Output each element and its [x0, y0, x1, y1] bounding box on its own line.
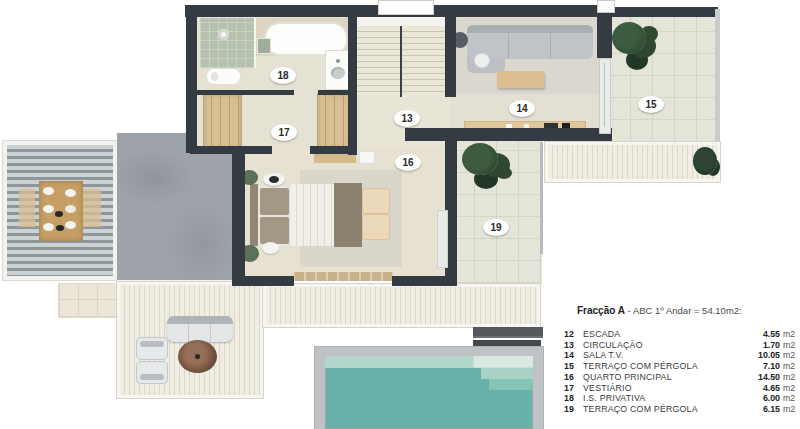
wall-top-terrace15 [605, 7, 718, 17]
toilet [206, 68, 241, 85]
legend-nm: TERRAÇO COM PÉRGOLA [583, 361, 763, 372]
legend-val: 7.10 [763, 361, 780, 372]
bath-towel [257, 38, 271, 54]
bed-pillow [258, 186, 291, 217]
outdoor-armchair [136, 361, 168, 384]
legend-val: 4.55 [763, 329, 780, 340]
legend-num: 12 [564, 329, 577, 340]
door-threshold-wood [293, 272, 393, 281]
legend-nm: QUARTO PRINCIPAL [583, 372, 758, 383]
legend-unit: m2 [783, 361, 798, 372]
legend-row-18: 18I.S. PRIVATIVA6.00m2 [560, 393, 798, 404]
wall-stairs-east [445, 5, 456, 97]
pool [315, 347, 543, 429]
legend-unit: m2 [783, 404, 798, 415]
pool-step [489, 379, 533, 390]
outdoor-dining-chair [83, 189, 101, 227]
pool-shade-slats [473, 327, 543, 338]
outdoor-sofa [167, 316, 233, 342]
legend-row-12: 12ESCADA4.55m2 [560, 329, 798, 340]
legend-unit: m2 [783, 372, 798, 383]
legend-title-fraction: Fracção A [577, 305, 625, 316]
stair-flight-right [402, 26, 445, 97]
deck-strip-bottom [263, 284, 540, 327]
legend-unit: m2 [783, 393, 798, 404]
room-label-18: 18 [270, 67, 296, 84]
legend-row-15: 15TERRAÇO COM PÉRGOLA7.10m2 [560, 361, 798, 372]
terrace15-east-trim [715, 9, 720, 141]
legend-nm: I.S. PRIVATIVA [583, 393, 763, 404]
stair-divider [400, 26, 402, 97]
terrace-19-edge [540, 142, 543, 254]
legend-val: 14.50 [758, 372, 780, 383]
legend-val: 6.15 [763, 404, 780, 415]
pergola-louvered-roof [3, 141, 117, 280]
legend-num: 18 [564, 393, 577, 404]
legend-row-19: 19TERRAÇO COM PÉRGOLA6.15m2 [560, 404, 798, 415]
room-label-15: 15 [638, 96, 664, 113]
plant-terrace19 [462, 143, 498, 175]
plant-deck-right [693, 147, 717, 175]
shower-area [200, 18, 255, 68]
legend-nm: ESCADA [583, 329, 763, 340]
legend-num: 14 [564, 350, 577, 361]
wall-div-18-17 [318, 90, 352, 95]
bed-bench-cushion [362, 214, 390, 240]
room-label-19: 19 [483, 219, 509, 236]
legend-unit: m2 [783, 329, 798, 340]
shower-head-icon [218, 29, 229, 40]
bed-blanket [334, 183, 362, 247]
legend-val: 4.65 [763, 383, 780, 394]
nightstand [263, 173, 285, 186]
legend-row-17: 17VESTIÁRIO4.65m2 [560, 383, 798, 394]
legend-nm: SALA T.V. [583, 350, 758, 361]
legend-row-13: 13CIRCULAÇÃO1.70m2 [560, 340, 798, 351]
legend-unit: m2 [783, 350, 798, 361]
wall-div-17-16 [310, 146, 352, 154]
room-label-14: 14 [509, 100, 535, 117]
bedroom-white-unit [359, 151, 375, 164]
wall-bedroom-south [232, 276, 294, 286]
legend-row-14: 14SALA T.V.10.05m2 [560, 350, 798, 361]
legend-unit: m2 [783, 383, 798, 394]
room-label-16: 16 [395, 154, 421, 171]
wall-div-17-16 [190, 146, 272, 154]
legend-title: Fracção A - ABC 1º Andar = 54.10m2: [577, 305, 798, 316]
legend-val: 1.70 [763, 340, 780, 351]
tile-patio-small [58, 283, 120, 318]
skylight-stairs [378, 0, 434, 15]
floorplan-canvas: 18171316141519 Fracção A - ABC 1º Andar … [0, 0, 800, 429]
wardrobe-left [203, 94, 242, 150]
sliding-door-sala-terrace15 [599, 58, 611, 134]
floor-lamp [474, 53, 490, 68]
legend-num: 19 [564, 404, 577, 415]
bed-pillow [258, 215, 291, 246]
wall-west [186, 5, 197, 153]
stair-flight-left [357, 26, 400, 97]
outdoor-dining-table [39, 181, 83, 241]
legend-val: 10.05 [758, 350, 780, 361]
pool-step [473, 356, 533, 368]
bed-bench-cushion [362, 188, 390, 214]
legend-num: 13 [564, 340, 577, 351]
room-label-17: 17 [271, 124, 297, 141]
bed-headboard [250, 184, 258, 246]
legend-nm: VESTIÁRIO [583, 383, 763, 394]
room-label-13: 13 [394, 110, 420, 127]
wall-bedroom-south [392, 276, 457, 286]
legend-nm: TERRAÇO COM PÉRGOLA [583, 404, 763, 415]
ac-unit [597, 0, 615, 13]
legend-val: 6.00 [763, 393, 780, 404]
outdoor-round-table [178, 340, 217, 373]
legend-row-16: 16QUARTO PRINCIPAL14.50m2 [560, 372, 798, 383]
pool-water [325, 356, 533, 429]
legend-rows: 12ESCADA4.55m213CIRCULAÇÃO1.70m214SALA T… [560, 329, 798, 415]
legend-unit: m2 [783, 340, 798, 351]
sliding-door-bedroom-terrace19 [437, 210, 448, 268]
legend-num: 17 [564, 383, 577, 394]
wall-south-corridor-sala [405, 128, 612, 141]
wall-bedroom-west [232, 146, 245, 286]
wardrobe-right [317, 93, 351, 148]
pool-step [481, 368, 533, 379]
bed-mattress [289, 184, 336, 246]
legend-num: 15 [564, 361, 577, 372]
wall-stairs-west [348, 5, 357, 155]
legend-title-detail: - ABC 1º Andar = 54.10m2: [625, 305, 742, 316]
plant-terrace15 [612, 22, 646, 54]
concrete-patio [117, 133, 238, 283]
outdoor-armchair [136, 337, 168, 360]
legend-nm: CIRCULAÇÃO [583, 340, 763, 351]
legend: Fracção A - ABC 1º Andar = 54.10m2: 12ES… [560, 305, 798, 415]
wall-div-18-17 [196, 90, 294, 95]
legend-num: 16 [564, 372, 577, 383]
stool [262, 242, 279, 254]
coffee-table [497, 71, 544, 88]
outdoor-dining-chair [19, 189, 35, 227]
